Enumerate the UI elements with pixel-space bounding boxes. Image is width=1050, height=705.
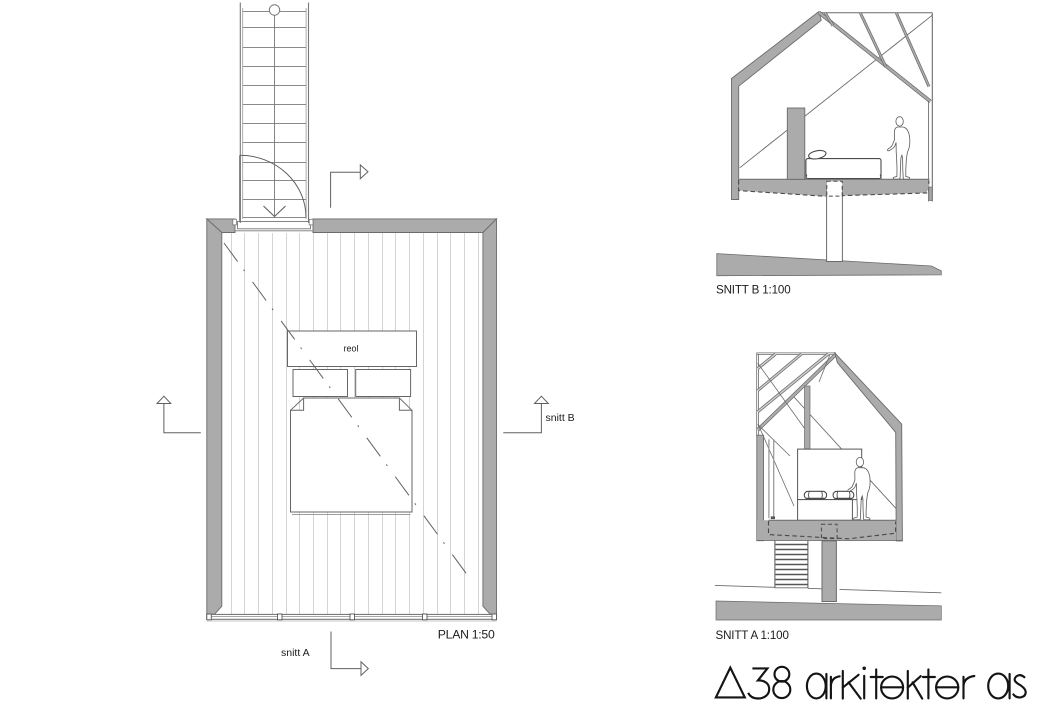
svg-text:SNITT B 1:100: SNITT B 1:100 bbox=[716, 284, 791, 297]
svg-text:snitt B: snitt B bbox=[546, 412, 575, 424]
svg-text:PLAN 1:50: PLAN 1:50 bbox=[438, 628, 495, 642]
svg-text:SNITT A 1:100: SNITT A 1:100 bbox=[716, 629, 789, 642]
svg-text:snitt A: snitt A bbox=[281, 647, 310, 659]
svg-text:reol: reol bbox=[343, 344, 358, 354]
